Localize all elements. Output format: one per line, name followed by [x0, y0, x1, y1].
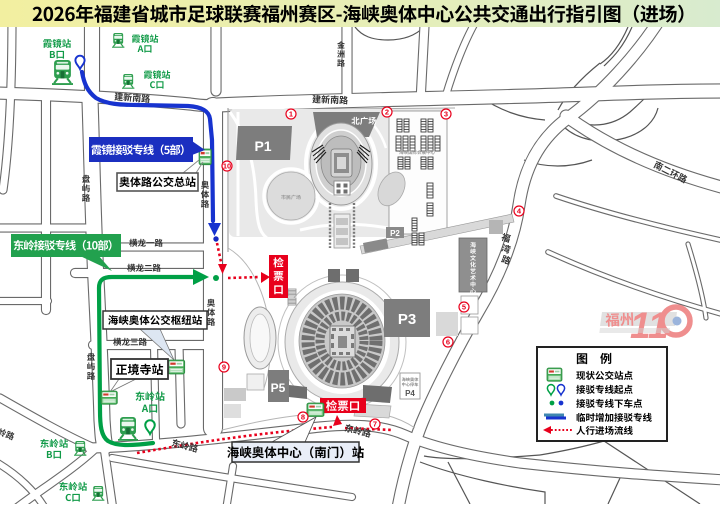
- svg-text:P2: P2: [390, 229, 400, 238]
- svg-text:P5: P5: [271, 381, 286, 395]
- svg-text:5: 5: [462, 303, 466, 312]
- svg-text:8: 8: [301, 413, 305, 422]
- svg-text:P4: P4: [405, 389, 415, 398]
- svg-text:6: 6: [446, 338, 450, 347]
- svg-text:3: 3: [444, 110, 448, 119]
- svg-text:9: 9: [222, 363, 226, 372]
- svg-text:P1: P1: [254, 138, 271, 154]
- svg-text:10: 10: [223, 162, 231, 171]
- svg-text:P3: P3: [398, 311, 416, 328]
- svg-text:7: 7: [373, 420, 377, 429]
- svg-text:2: 2: [385, 108, 389, 117]
- svg-text:1: 1: [289, 110, 293, 119]
